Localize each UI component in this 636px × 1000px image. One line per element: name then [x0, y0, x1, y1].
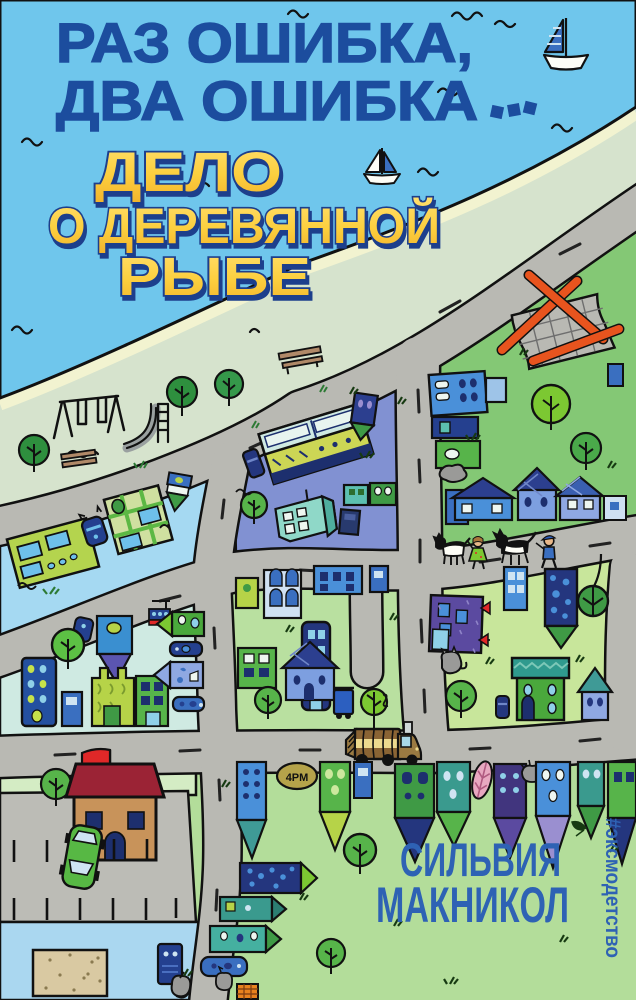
svg-text:#эксмодетство: #эксмодетство	[601, 818, 624, 958]
svg-text:4PM: 4PM	[286, 772, 309, 784]
svg-text:РАЗ ОШИБКА,: РАЗ ОШИБКА,	[56, 11, 473, 74]
svg-text:ДВА ОШИБКА: ДВА ОШИБКА	[56, 69, 478, 132]
svg-text:ДЕЛО: ДЕЛО	[95, 140, 282, 203]
svg-text:РЫБЕ: РЫБЕ	[118, 247, 311, 307]
svg-text:О ДЕРЕВЯННОЙ: О ДЕРЕВЯННОЙ	[48, 197, 440, 254]
svg-text:МАКНИКОЛ: МАКНИКОЛ	[376, 877, 569, 933]
